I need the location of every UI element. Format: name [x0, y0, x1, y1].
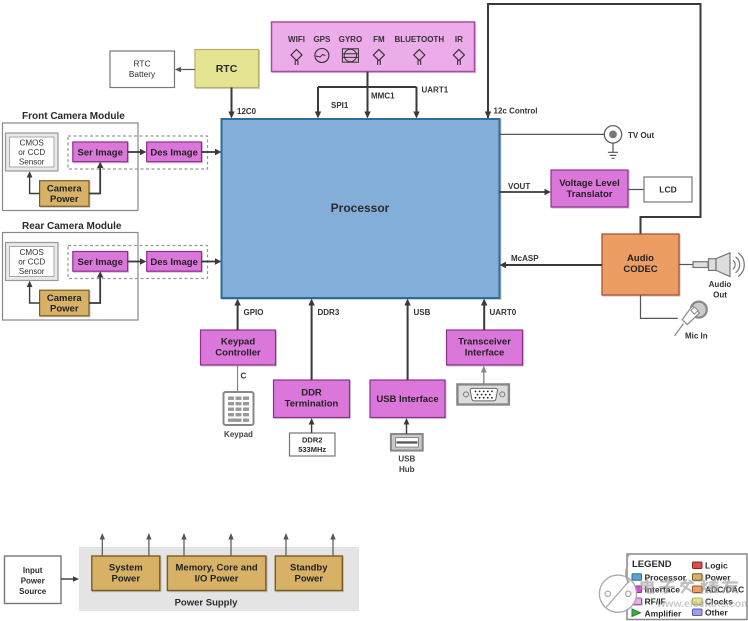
- svg-text:Controller: Controller: [215, 348, 261, 359]
- svg-text:Termination: Termination: [285, 399, 339, 410]
- svg-text:www.elecfans.com: www.elecfans.com: [656, 598, 748, 610]
- svg-text:TV Out: TV Out: [628, 131, 655, 140]
- svg-text:DDR2: DDR2: [302, 436, 322, 445]
- svg-text:Out: Out: [713, 291, 727, 300]
- svg-text:UART1: UART1: [422, 86, 449, 95]
- svg-text:I/O Power: I/O Power: [195, 574, 239, 585]
- svg-text:Ser Image: Ser Image: [77, 148, 122, 159]
- svg-text:VOUT: VOUT: [508, 182, 530, 191]
- svg-text:CMOS: CMOS: [20, 139, 45, 148]
- svg-text:Transceiver: Transceiver: [458, 337, 511, 348]
- svg-text:Front Camera Module: Front Camera Module: [22, 111, 125, 122]
- svg-text:Audio: Audio: [627, 253, 654, 264]
- svg-text:Power: Power: [705, 573, 731, 583]
- svg-text:GPS: GPS: [313, 35, 331, 44]
- svg-text:Power: Power: [21, 577, 45, 586]
- svg-text:WIFI: WIFI: [288, 35, 305, 44]
- svg-text:USB: USB: [398, 455, 415, 464]
- svg-text:McASP: McASP: [511, 254, 539, 263]
- svg-text:IR: IR: [455, 35, 463, 44]
- svg-text:LCD: LCD: [659, 185, 676, 195]
- svg-text:Power: Power: [50, 304, 79, 315]
- svg-text:Camera: Camera: [47, 293, 83, 304]
- svg-text:Power: Power: [112, 574, 141, 585]
- svg-text:12C0: 12C0: [237, 107, 257, 116]
- svg-text:Des Image: Des Image: [150, 148, 198, 159]
- svg-text:Voltage Level: Voltage Level: [559, 178, 620, 189]
- svg-text:DDR3: DDR3: [318, 308, 340, 317]
- svg-text:Battery: Battery: [129, 69, 156, 79]
- svg-text:System: System: [109, 563, 143, 574]
- svg-text:Des Image: Des Image: [150, 257, 198, 268]
- svg-text:Mic In: Mic In: [685, 332, 708, 341]
- svg-text:FM: FM: [373, 35, 385, 44]
- svg-text:GPIO: GPIO: [244, 308, 264, 317]
- svg-text:Keypad: Keypad: [224, 430, 253, 439]
- svg-text:or CCD: or CCD: [18, 258, 45, 267]
- svg-text:Sensor: Sensor: [19, 267, 45, 276]
- svg-text:12c Control: 12c Control: [494, 107, 538, 116]
- svg-text:USB Interface: USB Interface: [376, 394, 438, 405]
- svg-text:Power Supply: Power Supply: [175, 598, 239, 609]
- svg-text:Audio: Audio: [709, 280, 732, 289]
- svg-text:Camera: Camera: [47, 184, 83, 195]
- svg-text:CMOS: CMOS: [20, 248, 45, 257]
- svg-text:CODEC: CODEC: [623, 264, 657, 275]
- svg-text:RTC: RTC: [216, 63, 238, 75]
- svg-text:533MHz: 533MHz: [298, 445, 326, 454]
- svg-text:Ser Image: Ser Image: [77, 257, 122, 268]
- svg-text:Power: Power: [295, 574, 324, 585]
- svg-text:or CCD: or CCD: [18, 148, 45, 157]
- svg-text:Keypad: Keypad: [221, 337, 256, 348]
- svg-text:Standby: Standby: [290, 563, 328, 574]
- svg-text:Input: Input: [23, 566, 43, 575]
- svg-text:BLUETOOTH: BLUETOOTH: [394, 35, 444, 44]
- svg-text:GYRO: GYRO: [339, 35, 363, 44]
- svg-text:USB: USB: [414, 308, 431, 317]
- svg-text:DDR: DDR: [301, 388, 322, 399]
- svg-text:C: C: [241, 372, 247, 381]
- svg-text:Rear Camera Module: Rear Camera Module: [22, 221, 122, 232]
- svg-text:Processor: Processor: [331, 201, 390, 215]
- svg-text:Translator: Translator: [567, 189, 613, 200]
- svg-text:MMC1: MMC1: [371, 92, 395, 101]
- svg-text:Power: Power: [50, 194, 79, 205]
- svg-text:Source: Source: [19, 587, 47, 596]
- svg-text:SPI1: SPI1: [331, 101, 349, 110]
- svg-text:Sensor: Sensor: [19, 158, 45, 167]
- svg-text:UART0: UART0: [490, 308, 517, 317]
- svg-text:Amplifier: Amplifier: [645, 609, 683, 619]
- svg-text:Logic: Logic: [705, 561, 728, 571]
- svg-text:Hub: Hub: [399, 465, 415, 474]
- svg-text:RTC: RTC: [134, 59, 151, 69]
- svg-text:Memory, Core and: Memory, Core and: [176, 563, 258, 574]
- svg-text:LEGEND: LEGEND: [632, 559, 672, 570]
- svg-text:Interface: Interface: [465, 348, 505, 359]
